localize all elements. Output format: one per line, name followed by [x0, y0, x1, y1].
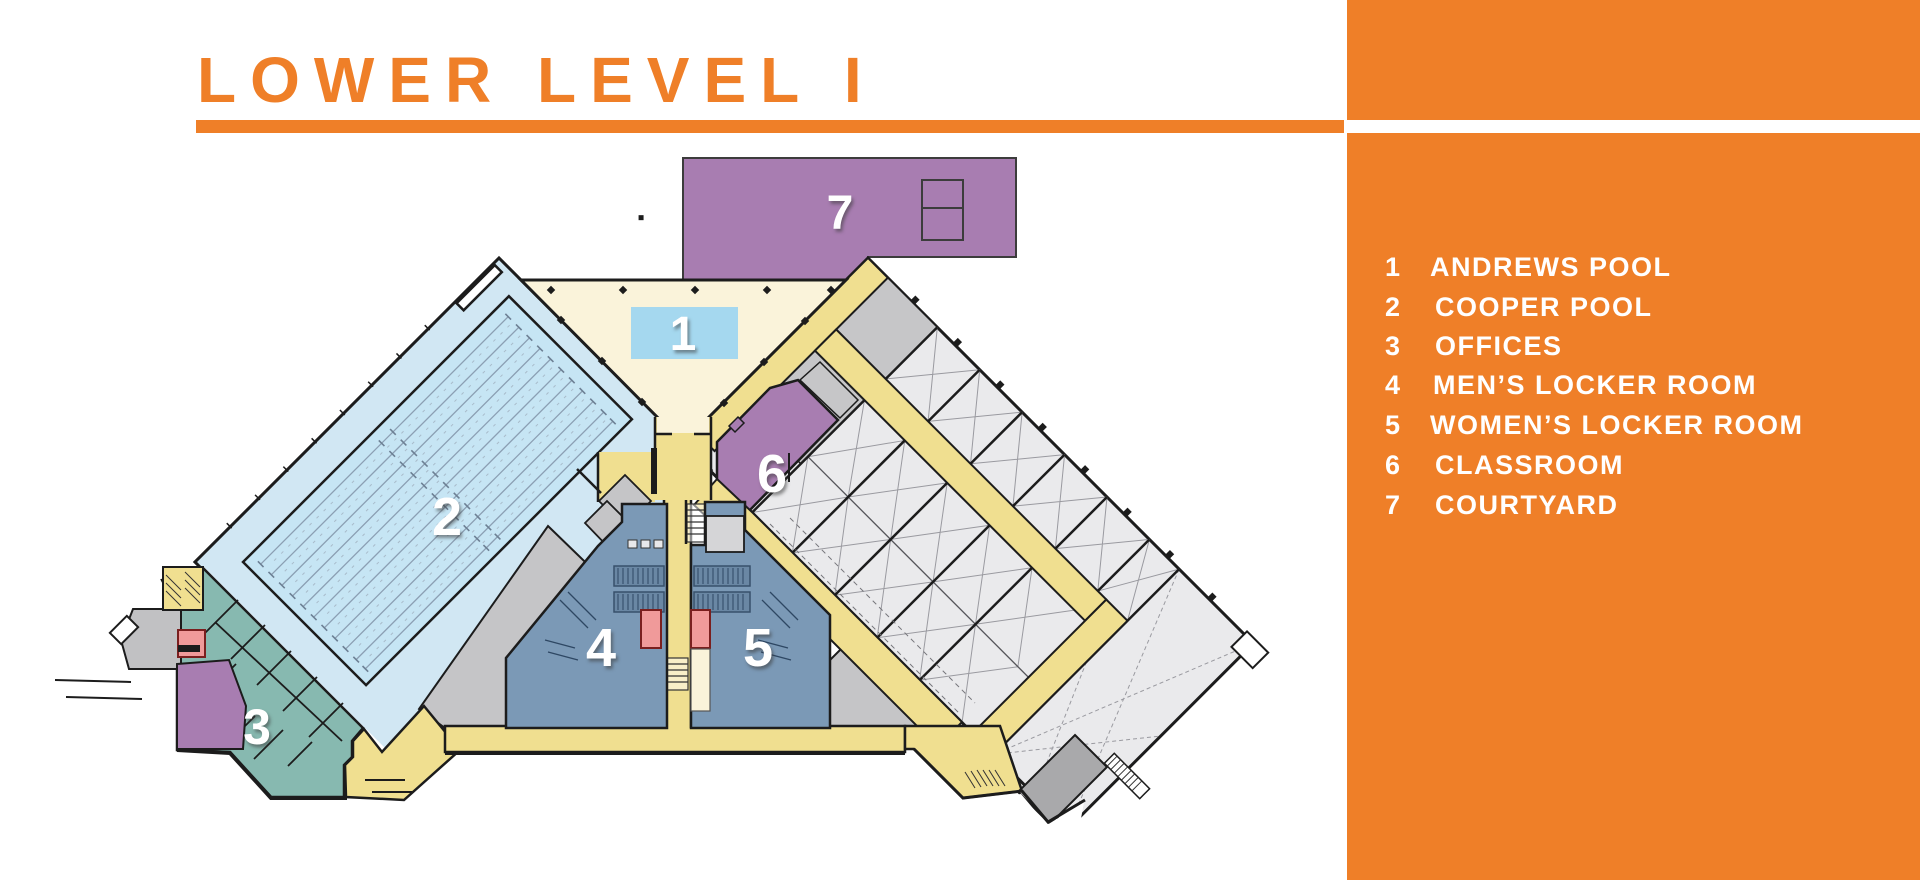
- svg-text:1: 1: [1385, 252, 1402, 282]
- svg-text:2: 2: [1385, 292, 1402, 322]
- svg-text:CLASSROOM: CLASSROOM: [1435, 450, 1624, 480]
- svg-text:LOWER LEVEL I: LOWER LEVEL I: [197, 44, 876, 116]
- svg-text:6: 6: [757, 444, 787, 504]
- svg-text:5: 5: [1385, 410, 1402, 440]
- svg-text:4: 4: [586, 618, 616, 678]
- svg-text:6: 6: [1385, 450, 1402, 480]
- svg-text:WOMEN’S LOCKER ROOM: WOMEN’S LOCKER ROOM: [1430, 410, 1804, 440]
- svg-text:2: 2: [432, 487, 462, 547]
- svg-text:COOPER POOL: COOPER POOL: [1435, 292, 1653, 322]
- svg-text:ANDREWS POOL: ANDREWS POOL: [1430, 252, 1672, 282]
- svg-text:7: 7: [1385, 490, 1402, 520]
- svg-text:4: 4: [1385, 370, 1402, 400]
- svg-text:OFFICES: OFFICES: [1435, 331, 1563, 361]
- svg-text:MEN’S LOCKER ROOM: MEN’S LOCKER ROOM: [1433, 370, 1757, 400]
- svg-text:1: 1: [670, 308, 697, 361]
- svg-text:COURTYARD: COURTYARD: [1435, 490, 1619, 520]
- svg-text:3: 3: [243, 699, 271, 755]
- svg-text:3: 3: [1385, 331, 1402, 361]
- svg-text:5: 5: [743, 618, 773, 678]
- svg-text:7: 7: [827, 187, 854, 240]
